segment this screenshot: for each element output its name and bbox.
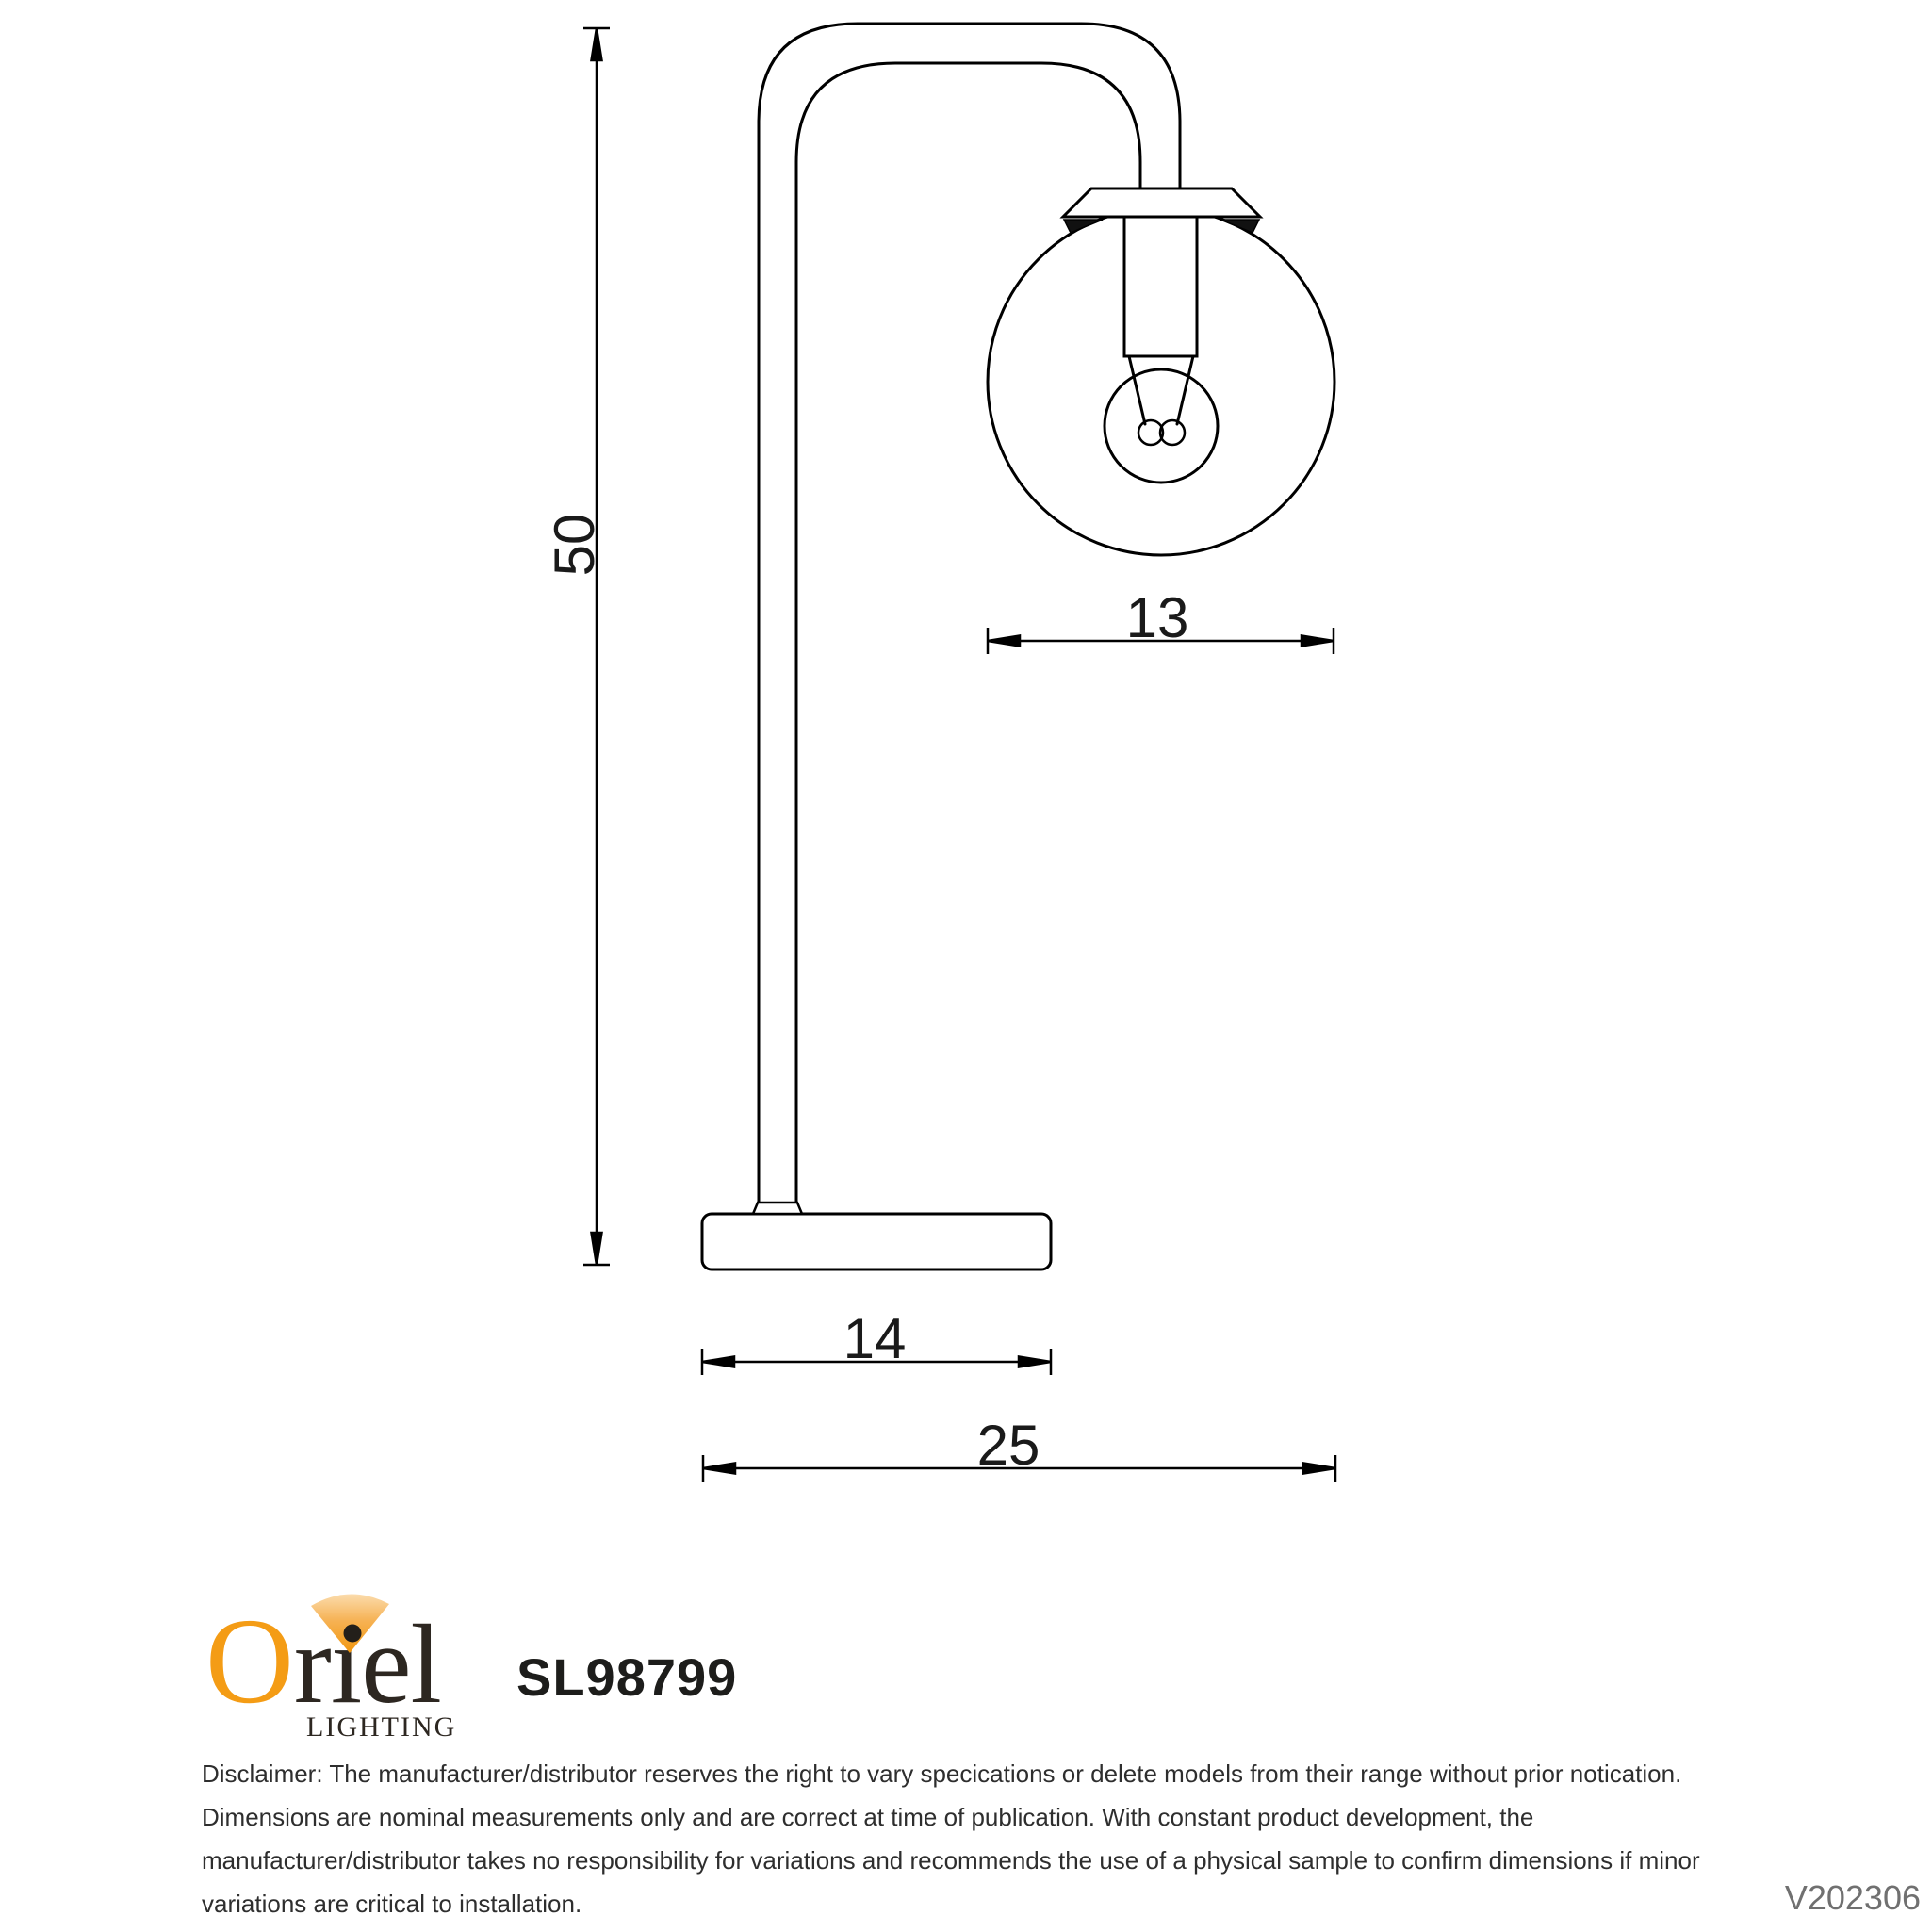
- lamp-beam-icon: [302, 1576, 405, 1665]
- spec-sheet-page: 50 13 14 25 Oriel LIGHTING SL98799 Discl…: [0, 0, 1932, 1932]
- height-dimension: [583, 28, 610, 1265]
- stem-collar: [753, 1203, 802, 1214]
- shade-dim-left-arrow: [988, 636, 1020, 647]
- lamp-socket: [1124, 217, 1197, 356]
- disclaimer-text: Disclaimer: The manufacturer/distributor…: [202, 1752, 1700, 1925]
- base-dim-right-arrow: [1019, 1357, 1051, 1367]
- height-dimension-value: 50: [543, 514, 606, 577]
- lamp-base: [702, 1214, 1051, 1269]
- light-cone-icon: [311, 1594, 389, 1653]
- base-dim-left-arrow: [702, 1357, 734, 1367]
- bulb-neck-left: [1129, 356, 1145, 424]
- height-dim-top-arrow: [592, 28, 602, 60]
- disclaimer-line: variations are critical to installation.: [202, 1882, 1700, 1925]
- light-dot-icon: [344, 1625, 362, 1643]
- disclaimer-line: manufacturer/distributor takes no respon…: [202, 1839, 1700, 1882]
- arm-inner-line: [796, 63, 1140, 1204]
- brand-logo-tagline: LIGHTING: [306, 1711, 456, 1744]
- shade-diameter-value: 13: [1126, 586, 1189, 649]
- disclaimer-line: Dimensions are nominal measurements only…: [202, 1795, 1700, 1839]
- product-code: SL98799: [516, 1651, 737, 1704]
- gallery-cap: [1063, 188, 1260, 217]
- shade-dim-right-arrow: [1302, 636, 1334, 647]
- brand-logo-o: O: [205, 1594, 294, 1729]
- base-width-value: 14: [843, 1307, 907, 1370]
- gallery-left-wedge: [1064, 220, 1103, 233]
- overall-depth-value: 25: [977, 1414, 1040, 1477]
- disclaimer-line: Disclaimer: The manufacturer/distributor…: [202, 1752, 1700, 1795]
- depth-dim-left-arrow: [703, 1464, 735, 1474]
- bulb-neck-right: [1177, 356, 1193, 424]
- depth-dim-right-arrow: [1303, 1464, 1335, 1474]
- gallery-right-wedge: [1220, 220, 1259, 233]
- version-number: V202306: [1770, 1881, 1921, 1915]
- height-dim-bottom-arrow: [592, 1233, 602, 1265]
